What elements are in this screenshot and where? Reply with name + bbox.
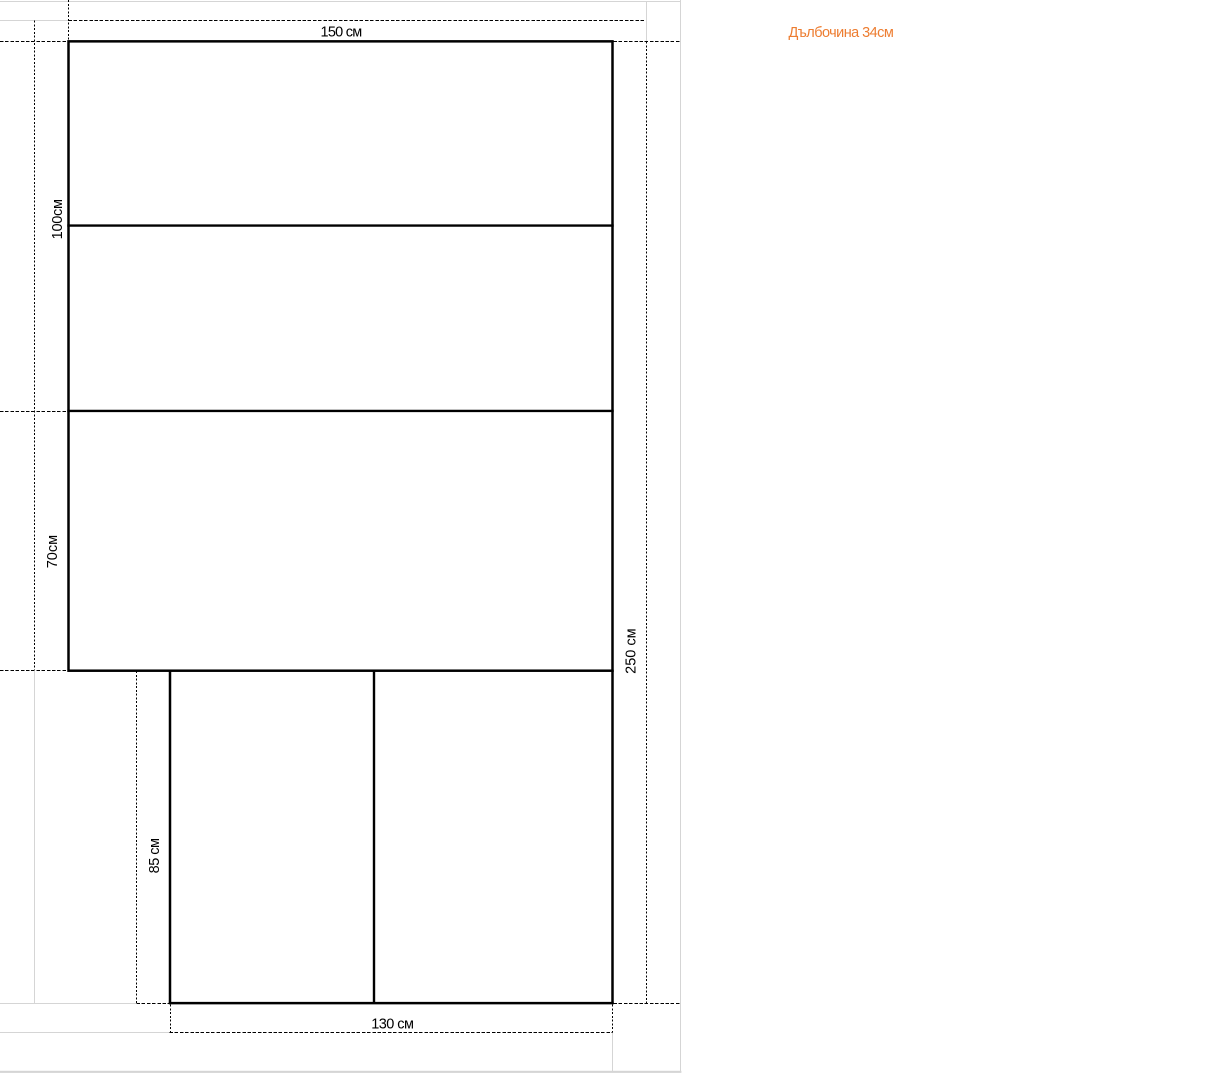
svg-text:85 см: 85 см (147, 838, 163, 873)
svg-text:130 см: 130 см (371, 1017, 413, 1033)
svg-text:Дълбочина 34см: Дълбочина 34см (789, 25, 894, 41)
svg-text:150 см: 150 см (321, 24, 362, 40)
svg-text:250 см: 250 см (623, 628, 639, 673)
svg-text:100см: 100см (50, 199, 66, 239)
svg-text:70см: 70см (45, 535, 61, 568)
